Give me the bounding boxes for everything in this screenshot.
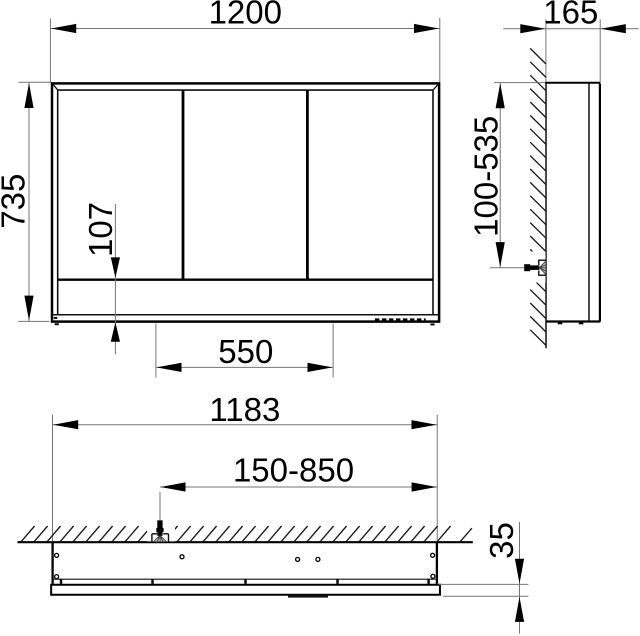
svg-text:100-535: 100-535 <box>467 116 504 237</box>
svg-text:150-850: 150-850 <box>233 452 354 489</box>
svg-text:35: 35 <box>483 522 520 559</box>
svg-text:735: 735 <box>0 174 31 229</box>
svg-text:107: 107 <box>82 202 119 257</box>
svg-text:1183: 1183 <box>209 391 280 428</box>
svg-text:165: 165 <box>543 0 598 30</box>
svg-text:550: 550 <box>218 333 273 370</box>
svg-text:1200: 1200 <box>209 0 282 30</box>
